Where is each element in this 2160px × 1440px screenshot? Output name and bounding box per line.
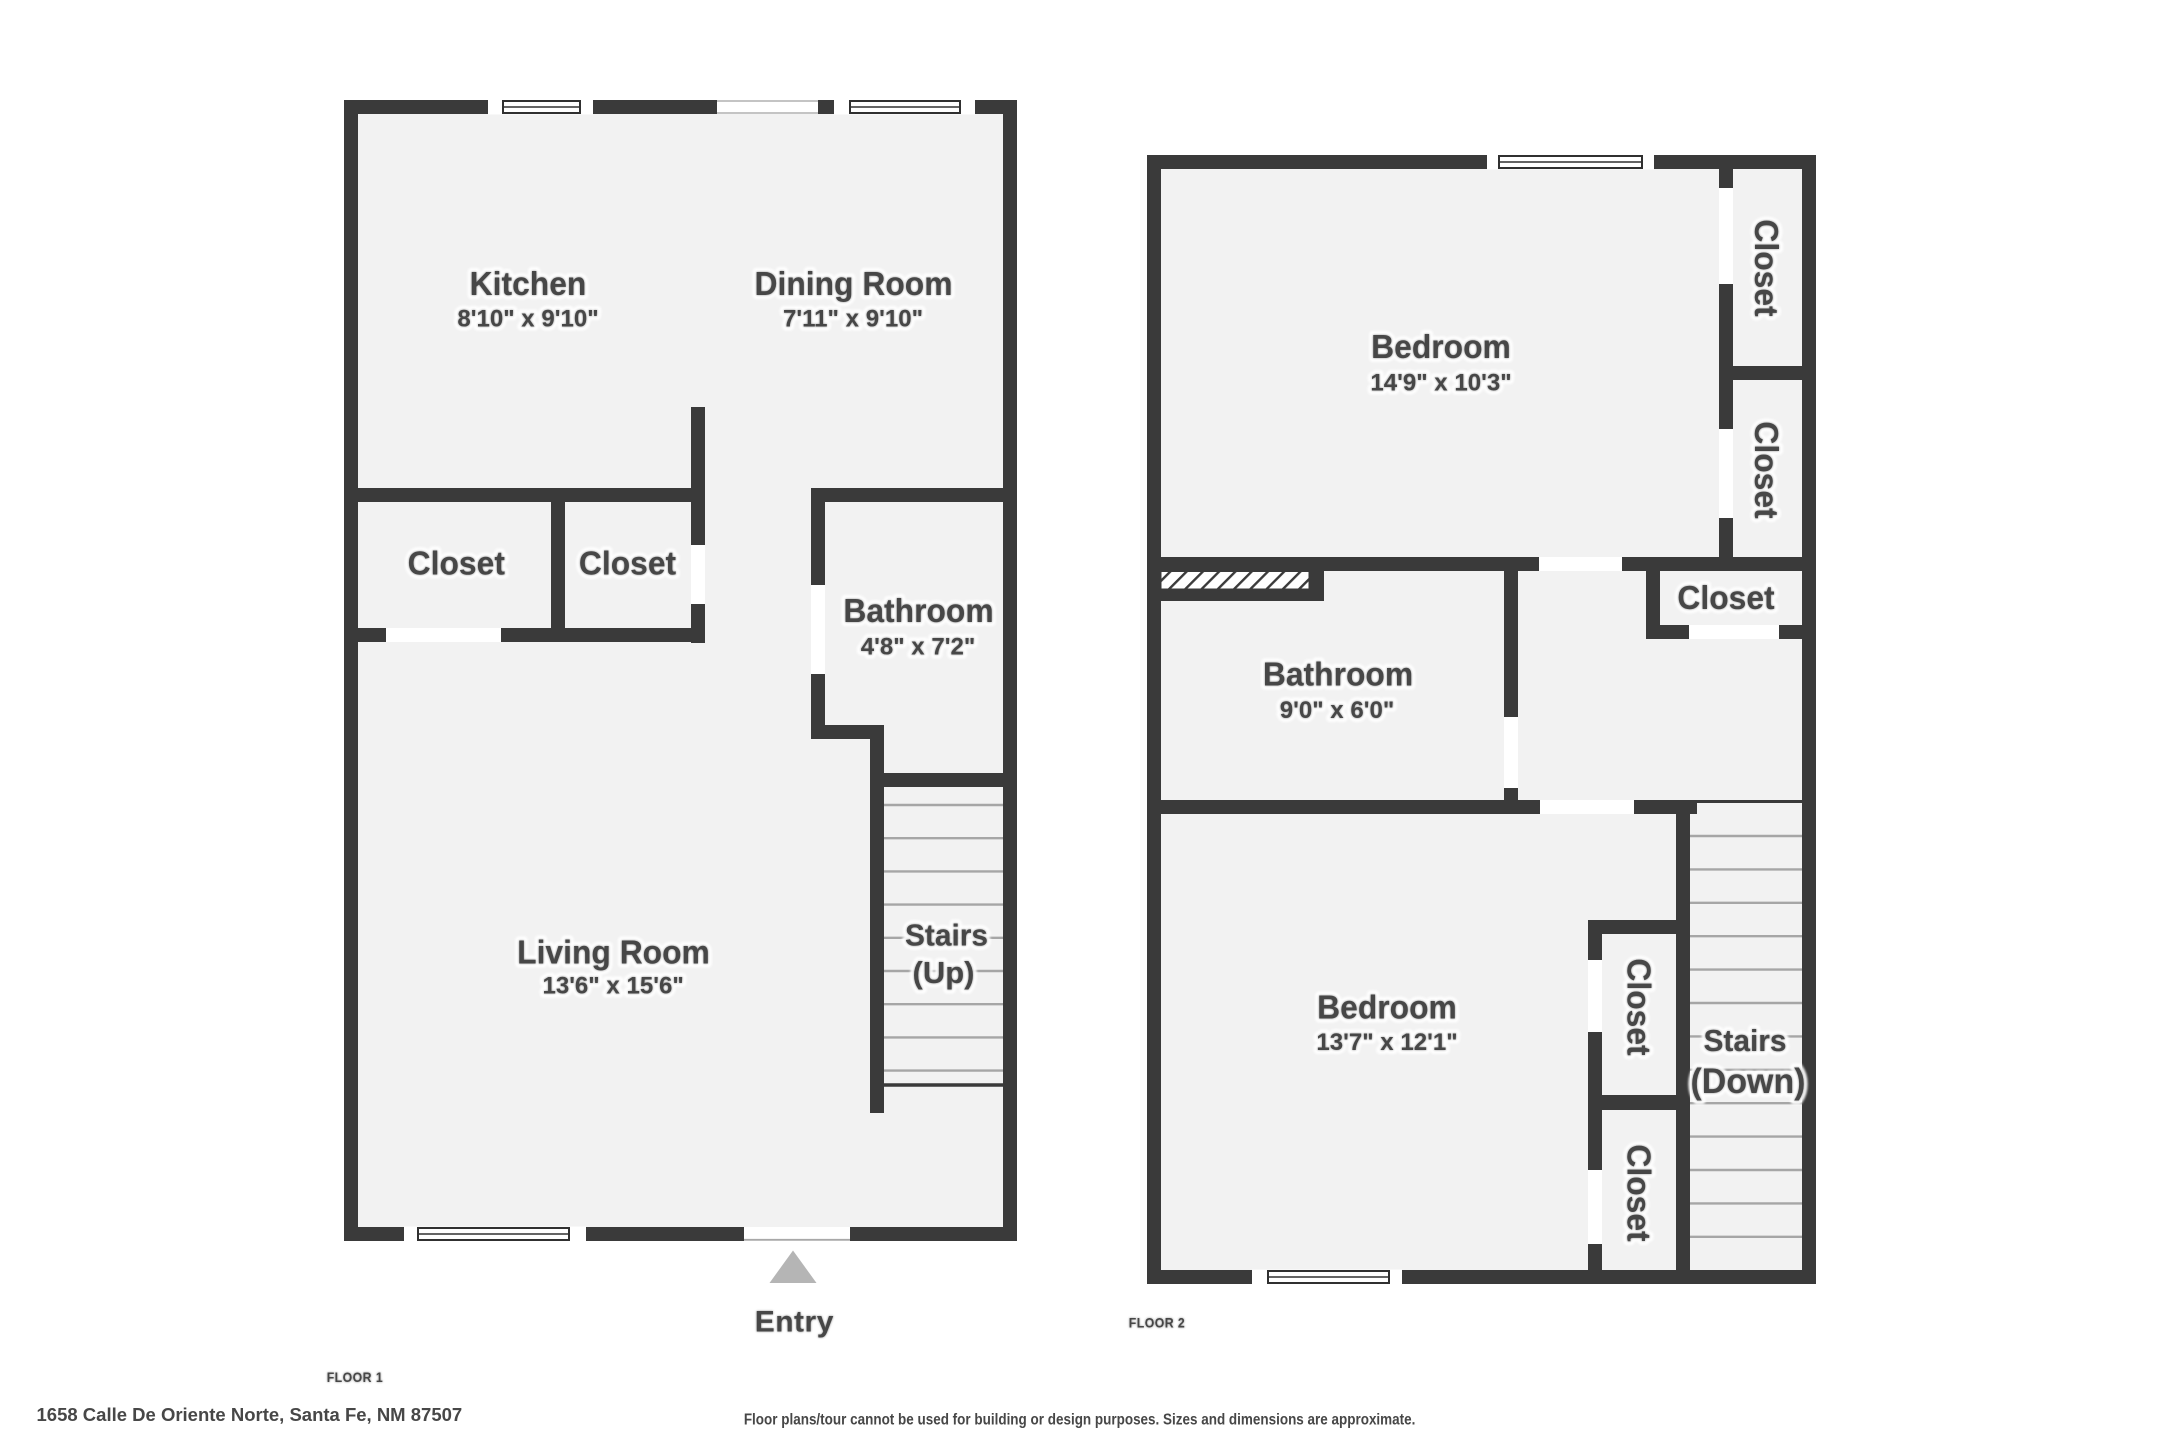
svg-text:Closet: Closet	[1620, 958, 1657, 1055]
svg-text:Dining Room: Dining Room	[755, 265, 953, 302]
svg-text:FLOOR 2: FLOOR 2	[1129, 1315, 1185, 1331]
svg-text:Closet: Closet	[408, 545, 505, 582]
svg-text:Entry: Entry	[755, 1305, 834, 1338]
svg-text:Closet: Closet	[1748, 219, 1785, 316]
svg-text:14'9" x 10'3": 14'9" x 10'3"	[1370, 370, 1511, 397]
svg-text:Closet: Closet	[1677, 579, 1774, 616]
svg-text:8'10" x 9'10": 8'10" x 9'10"	[457, 306, 598, 333]
svg-text:Bedroom: Bedroom	[1317, 989, 1457, 1026]
svg-text:1658 Calle De Oriente Norte, S: 1658 Calle De Oriente Norte, Santa Fe, N…	[37, 1404, 463, 1425]
svg-text:Closet: Closet	[579, 545, 676, 582]
svg-text:Living Room: Living Room	[517, 934, 710, 971]
svg-text:7'11" x 9'10": 7'11" x 9'10"	[783, 306, 923, 333]
svg-text:9'0" x 6'0": 9'0" x 6'0"	[1280, 697, 1395, 724]
svg-text:FLOOR 1: FLOOR 1	[327, 1369, 383, 1385]
svg-text:(Down): (Down)	[1691, 1063, 1806, 1102]
svg-text:Closet: Closet	[1620, 1144, 1657, 1241]
svg-text:Stairs: Stairs	[905, 918, 988, 953]
svg-text:Bathroom: Bathroom	[1263, 656, 1413, 693]
svg-text:Bathroom: Bathroom	[843, 592, 993, 629]
svg-text:Kitchen: Kitchen	[470, 265, 587, 302]
svg-text:(Up): (Up)	[913, 955, 975, 990]
svg-text:13'7" x 12'1": 13'7" x 12'1"	[1316, 1029, 1457, 1056]
svg-text:Floor plans/tour cannot be use: Floor plans/tour cannot be used for buil…	[744, 1412, 1416, 1429]
svg-text:13'6" x 15'6": 13'6" x 15'6"	[542, 973, 683, 1000]
svg-text:Closet: Closet	[1748, 421, 1785, 518]
svg-text:Bedroom: Bedroom	[1371, 328, 1511, 365]
svg-text:4'8" x 7'2": 4'8" x 7'2"	[861, 634, 976, 661]
svg-text:Stairs: Stairs	[1703, 1024, 1786, 1059]
